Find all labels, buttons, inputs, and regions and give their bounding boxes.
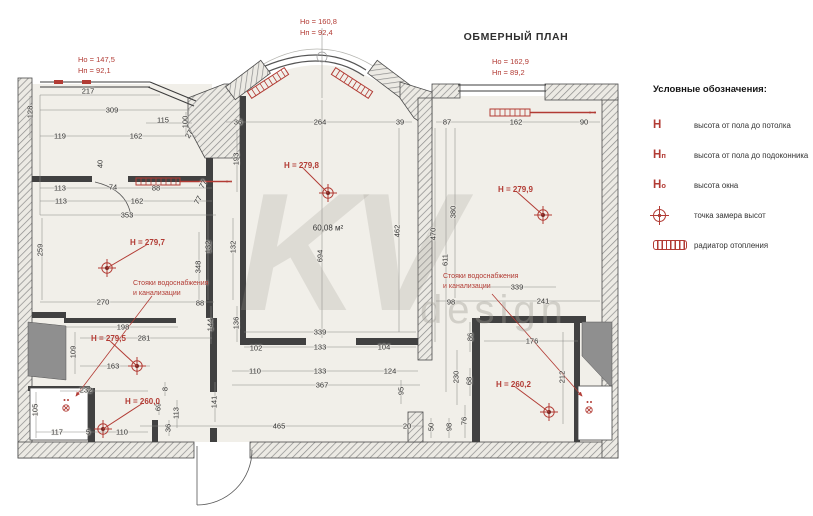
window-height-note: Hо = 147,5Hп = 92,1: [78, 54, 115, 77]
dimension-label: 241: [537, 297, 550, 306]
dimension-label: 124: [384, 367, 397, 376]
dimension-label: 367: [316, 381, 329, 390]
riser-note: Стояки водоснабженияи канализации: [443, 272, 518, 292]
dimension-label: 465: [273, 422, 286, 431]
legend-symbol: [653, 240, 687, 250]
window-height-note: Hо = 160,8Hп = 92,4: [300, 16, 337, 39]
dimension-label: 110: [249, 367, 261, 376]
dimension-label: 50: [427, 423, 436, 431]
dimension-label: 87: [443, 118, 451, 127]
height-marker-label: H = 279,8: [284, 161, 319, 170]
height-marker-label: H = 260,0: [125, 397, 160, 406]
dimension-label: 88: [152, 184, 160, 193]
dimension-label: 281: [138, 334, 151, 343]
legend-item-label: точка замера высот: [694, 211, 766, 220]
dimension-label: 339: [314, 328, 327, 337]
dimension-label: 133: [314, 367, 327, 376]
legend: Условные обозначения: Hвысота от пола до…: [653, 84, 811, 268]
riser-note-line: и канализации: [443, 282, 518, 292]
window-height-line: Hо = 160,8: [300, 16, 337, 27]
legend-item-label: высота от пола до подоконника: [694, 151, 808, 160]
dimension-label: 119: [54, 132, 66, 141]
dimension-label: 95: [397, 387, 406, 395]
dimension-label: 470: [429, 228, 438, 241]
dimension-label: 162: [131, 197, 144, 206]
window-height-line: Hп = 92,4: [300, 27, 337, 38]
dimension-label: 113: [55, 197, 67, 206]
dimension-label: 105: [31, 404, 40, 417]
legend-heading: Условные обозначения:: [653, 84, 811, 95]
dimension-label: 694: [316, 250, 325, 263]
legend-item-label: высота окна: [694, 181, 738, 190]
dimension-label: 162: [510, 118, 523, 127]
dimension-label: 128: [26, 106, 35, 119]
dimension-label: 110: [116, 428, 128, 437]
dimension-label: 36: [164, 424, 173, 432]
dimension-label: 109: [69, 346, 78, 359]
dimension-label: 141: [210, 396, 219, 409]
dimension-label: 212: [558, 371, 567, 384]
riser-note: Стояки водоснабженияи канализации: [133, 279, 208, 299]
dimension-label: 20: [403, 422, 411, 431]
legend-symbol: Hп: [653, 149, 687, 161]
legend-symbol: [653, 209, 687, 222]
measure-point-icon: [653, 209, 666, 222]
dimension-label: 198: [117, 323, 130, 332]
dimension-label: 144: [206, 319, 215, 332]
dimension-label: 163: [107, 362, 120, 371]
dimension-label: 77: [197, 178, 209, 190]
dimension-label: 113: [172, 407, 181, 419]
dimension-label: 309: [106, 106, 119, 115]
riser-note-line: и канализации: [133, 289, 208, 299]
dimension-label: 104: [378, 343, 391, 352]
dimension-label: 36: [234, 118, 242, 127]
legend-item-label: радиатор отопления: [694, 241, 768, 250]
dimension-label: 8: [161, 387, 170, 391]
legend-symbol: H: [653, 119, 687, 131]
radiator-icon: [653, 240, 687, 250]
height-marker-label: H = 279,9: [498, 185, 533, 194]
dimension-label: 193: [232, 153, 241, 166]
legend-item-label: высота от пола до потолка: [694, 121, 791, 130]
dimension-label: 117: [51, 428, 63, 437]
window-height-line: Hп = 92,1: [78, 65, 115, 76]
dimension-label: 462: [393, 225, 402, 238]
window-height-line: Hо = 147,5: [78, 54, 115, 65]
height-symbol: Hп: [653, 149, 666, 161]
legend-item: Hовысота окна: [653, 179, 811, 191]
riser-note-line: Стояки водоснабжения: [133, 279, 208, 289]
height-marker-label: H = 260,2: [496, 380, 531, 389]
height-marker-label: H = 279,5: [91, 334, 126, 343]
dimension-label: 232: [80, 386, 93, 395]
window-height-line: Hп = 89,2: [492, 67, 529, 78]
dimension-label: 113: [54, 184, 66, 193]
dimension-label: 264: [314, 118, 327, 127]
dimension-label: 348: [194, 261, 203, 274]
height-marker-label: H = 279,7: [130, 238, 165, 247]
dimension-label: 102: [250, 344, 263, 353]
legend-item: точка замера высот: [653, 209, 811, 222]
dimension-label: 115: [157, 116, 169, 125]
dimension-label: 230: [452, 371, 461, 384]
legend-item: радиатор отопления: [653, 240, 811, 250]
dimension-label: 133: [314, 343, 327, 352]
dimension-label: 132: [229, 241, 238, 254]
dimension-label: 39: [396, 118, 404, 127]
dimension-label: 176: [526, 337, 539, 346]
dimension-label: 259: [36, 244, 45, 257]
dimension-label: 76: [460, 417, 469, 425]
height-symbol: Hо: [653, 179, 666, 191]
dimension-label: 40: [96, 160, 105, 168]
dimension-label: 353: [121, 211, 134, 220]
dimension-label: 74: [109, 183, 117, 192]
dimension-label: 68: [465, 377, 474, 385]
dimension-label: 77: [192, 194, 204, 206]
height-symbol: H: [653, 119, 661, 131]
floor-plan-canvas: KV design ОБМЕРНЫЙ ПЛАН 60,08 м² 2173091…: [0, 0, 813, 516]
dimension-label: 27: [183, 128, 195, 140]
legend-item: Hпвысота от пола до подоконника: [653, 149, 811, 161]
dimension-label: 5: [86, 428, 90, 437]
dimension-label: 98: [445, 423, 454, 431]
dimension-label: 132: [204, 241, 213, 254]
riser-note-line: Стояки водоснабжения: [443, 272, 518, 282]
legend-item: Hвысота от пола до потолка: [653, 119, 811, 131]
dimension-label: 98: [447, 298, 455, 307]
legend-symbol: Hо: [653, 179, 687, 191]
dimension-label: 86: [466, 333, 475, 341]
dimension-label: 136: [232, 317, 241, 330]
dimension-label: 162: [130, 132, 143, 141]
dimension-label: 217: [82, 87, 95, 96]
window-height-note: Hо = 162,9Hп = 89,2: [492, 56, 529, 79]
dimension-label: 611: [441, 254, 450, 266]
dimension-label: 100: [181, 116, 190, 129]
window-height-line: Hо = 162,9: [492, 56, 529, 67]
dimension-label: 90: [580, 118, 588, 127]
legend-items: Hвысота от пола до потолкаHпвысота от по…: [653, 119, 811, 250]
dimension-label: 270: [97, 298, 110, 307]
dimension-label: 88: [196, 299, 204, 308]
dimension-label: 380: [449, 206, 458, 219]
